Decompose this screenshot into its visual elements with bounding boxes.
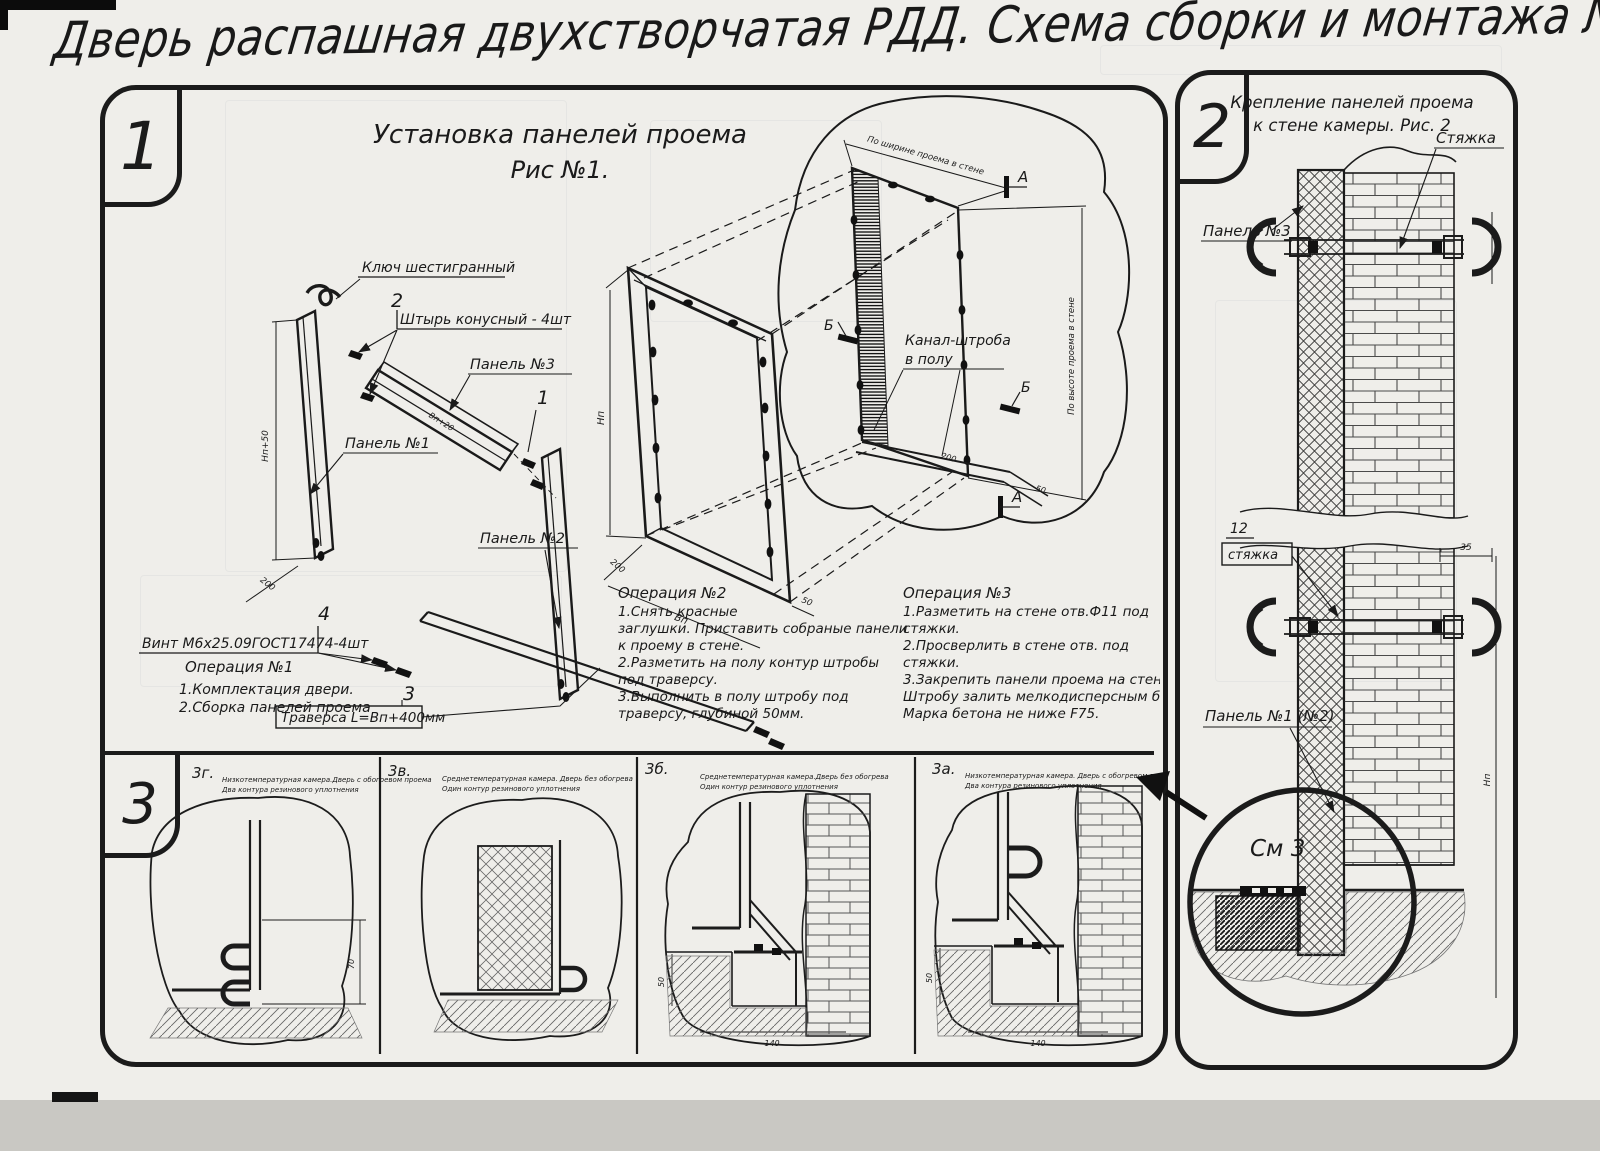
cell-3v-caption2: Один контур резинового уплотнения [442, 785, 580, 793]
figure2-drawing: Крепление панелей проема к стене камеры.… [1120, 75, 1510, 1057]
op2-line7: траверсу, глубиной 50мм. [618, 706, 804, 722]
frame-bolts [649, 299, 774, 557]
item4-number: 4 [318, 603, 330, 625]
panel1-height-dim: Нп+50 [261, 430, 271, 462]
tie-upper-nut [1308, 241, 1318, 253]
op3-title: Операция №3 [903, 584, 1011, 602]
tie-upper-nut [1432, 241, 1442, 253]
section-marker-a-bottom: А [998, 488, 1022, 518]
detail-3v-leaf [478, 846, 552, 990]
op1-title: Операция №1 [185, 658, 293, 676]
detail-3a-dim140: 140 [1030, 1039, 1045, 1048]
op3-line1: 1.Разметить на стене отв.Ф11 под [903, 604, 1149, 620]
tie-lower-nut [1308, 621, 1318, 633]
channel-label-line1: Канал-штроба [905, 333, 1011, 349]
detail-3b-wall [806, 794, 870, 1036]
op1-line1: 1.Комплектация двери. [179, 682, 354, 698]
section-marker-a-top: А [1004, 168, 1028, 198]
dim-right-label: Нп [1483, 774, 1493, 787]
detail-3b-floor-hatch [666, 956, 806, 1036]
detail-3g-dim70: 70 [347, 959, 356, 969]
screws [371, 657, 412, 678]
item1-leader [528, 410, 536, 452]
scan-artifact-bottom [52, 1092, 98, 1102]
traverse-label: Траверса L=Bп+400мм [281, 710, 445, 726]
figure1-title-line2: Рис №1. [511, 156, 610, 184]
op2-line6: 3.Выполнить в полу штробу под [618, 689, 849, 705]
op2-line5: под траверсу. [618, 672, 718, 688]
op2-title: Операция №2 [618, 584, 726, 602]
op3-line7: Марка бетона не ниже F75. [903, 706, 1099, 722]
detail-3a-floor-hatch [934, 950, 1078, 1036]
panel2-label-leader [478, 548, 578, 628]
detail-3g [150, 797, 366, 1044]
pos12-number: 12 [1230, 521, 1248, 537]
item1-number: 1 [537, 387, 549, 409]
cell-3a-id: 3а. [932, 760, 956, 778]
scan-artifact-corner [0, 0, 8, 30]
dim-35: 35 [1460, 543, 1472, 553]
panel1-shape [297, 311, 333, 558]
cell-3b-id: 3б. [645, 760, 669, 778]
figure2-title-line2: к стене камеры. Рис. 2 [1253, 116, 1451, 135]
detail-3a-dim50: 50 [925, 973, 934, 983]
assembled-frame [628, 268, 790, 602]
threshold-notch [1252, 888, 1260, 893]
detail-3b-dim50: 50 [657, 977, 666, 987]
scanner-edge-band [0, 1100, 1600, 1151]
section-marker-b-right: Б [1000, 380, 1031, 414]
tie-lower-nut [1432, 621, 1442, 633]
see-detail-3-label: См 3 [1250, 836, 1305, 862]
threshold-block [1216, 896, 1300, 950]
channel-leaders [874, 369, 1004, 456]
pin-label: Штырь конусный - 4шт [400, 312, 572, 328]
cell-3v-caption1: Среднетемпературная камера. Дверь без об… [442, 775, 633, 783]
hex-key-label: Ключ шестигранный [362, 260, 515, 276]
scanned-drawing-sheet: { "page": { "title": "Дверь распашная дв… [0, 0, 1600, 1151]
figure1-title-line1: Установка панелей проема [373, 120, 747, 150]
op2-line3: к проему в стене. [618, 638, 744, 654]
threshold-notch [1268, 888, 1276, 893]
opening-height-dim: По высоте проема в стене [1067, 297, 1077, 415]
threshold-notch [1284, 888, 1292, 893]
op2-line2: заглушки. Приставить собраные панели [618, 621, 908, 637]
op3-line2: стяжки. [903, 621, 960, 637]
panel2-label: Панель №2 [480, 531, 565, 547]
figure3-drawing: 3г. Низкотемпературная камера.Дверь с об… [105, 755, 1163, 1058]
cell-3b-caption2: Один контур резинового уплотнения [700, 783, 838, 791]
detail-3b-dim140: 140 [764, 1039, 779, 1048]
op3-line4: стяжки. [903, 655, 960, 671]
panel12-label: Панель №1 (№2) [1205, 707, 1334, 725]
op2-line1: 1.Снять красные [618, 604, 738, 620]
tie-small-label: стяжка [1228, 548, 1278, 563]
op3-line3: 2.Просверлить в стене отв. под [903, 638, 1129, 654]
scan-artifact-top [0, 0, 116, 10]
panel1-bolt [313, 538, 320, 548]
detail-arrow-shaft [1166, 792, 1206, 818]
section-marker-b-left: Б [824, 318, 858, 344]
cell-3g-caption2: Два контура резинового уплотнения [221, 786, 359, 794]
pin-item-number: 2 [391, 290, 403, 312]
wall-top-break [1344, 147, 1456, 170]
detail-3v-floor-hatch [434, 1000, 618, 1032]
figure1-drawing: Установка панелей проема Рис №1. Ключ ше… [105, 90, 1160, 755]
hex-key-callout [307, 277, 505, 305]
op2-line4: 2.Разметить на полу контур штробы [618, 655, 879, 671]
frame-height-dim: Нп [596, 411, 607, 426]
section-b-letter: Б [824, 318, 834, 334]
panel1-label: Панель №1 [345, 436, 430, 452]
traverse-screws [753, 726, 785, 750]
tie-rod-label: Стяжка [1436, 129, 1496, 147]
channel-label-line2: в полу [905, 352, 953, 368]
panel3-label: Панель №3 [1203, 222, 1291, 240]
panel1-bolt [318, 551, 325, 561]
screw-label: Винт М6х25.09ГОСТ17474-4шт [142, 636, 369, 652]
item3-number: 3 [403, 683, 415, 705]
opening-width-dim: По ширине проема в стене [866, 135, 985, 178]
detail-3g-floor-hatch [150, 1008, 362, 1038]
cell-3b-caption1: Среднетемпературная камера.Дверь без обо… [700, 773, 889, 781]
panel3-label-leader [450, 374, 572, 410]
panel1-width-dim: 200 [258, 575, 277, 593]
section-b-letter: Б [1021, 380, 1031, 396]
detail-arrow-head [1136, 771, 1170, 801]
panel2-bolt [558, 679, 565, 689]
cell-3g-id: 3г. [192, 764, 214, 782]
panel1-dims [246, 320, 315, 602]
panel3-label: Панель №3 [470, 357, 555, 373]
section-a-letter: А [1017, 168, 1028, 186]
frame-200-dim: 200 [608, 557, 627, 575]
figure2-title-line1: Крепление панелей проема [1230, 93, 1473, 112]
channel-200-dim: 200 [940, 451, 957, 464]
frame-50-dim: 50 [800, 595, 814, 608]
cell-3v-id: 3в. [388, 762, 411, 780]
